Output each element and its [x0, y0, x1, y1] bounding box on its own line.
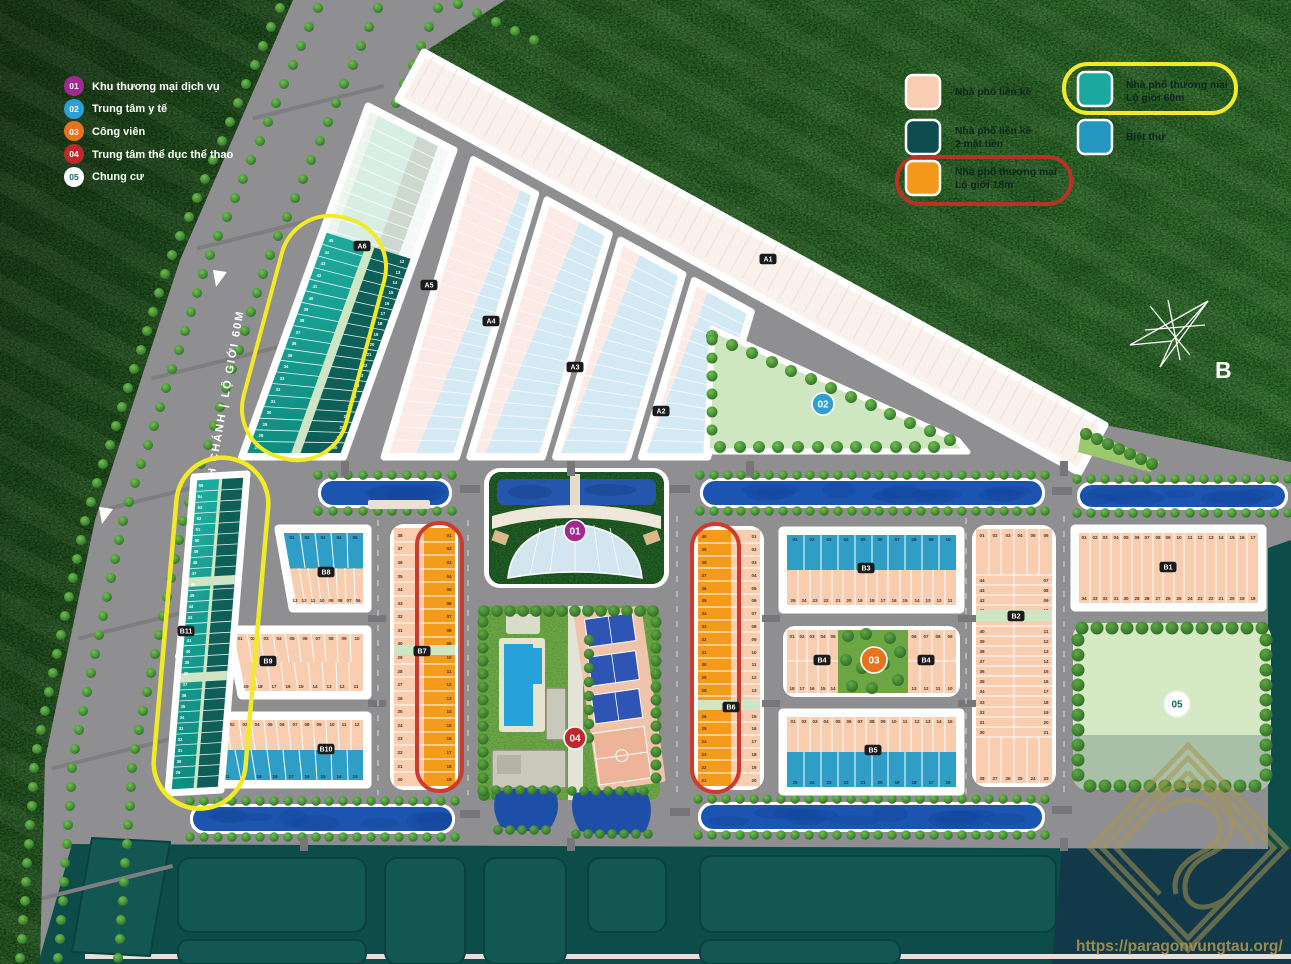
svg-text:34: 34 [284, 364, 289, 369]
svg-text:23: 23 [812, 598, 818, 603]
svg-text:16: 16 [304, 774, 310, 779]
svg-text:22: 22 [701, 765, 707, 770]
svg-text:Biệt thự: Biệt thự [1126, 132, 1166, 143]
svg-text:06: 06 [877, 537, 883, 542]
svg-text:07: 07 [292, 722, 298, 727]
svg-text:10: 10 [446, 655, 452, 660]
svg-text:05: 05 [835, 719, 841, 724]
svg-text:12: 12 [1197, 535, 1203, 540]
svg-text:30: 30 [177, 759, 182, 764]
svg-text:33: 33 [1092, 596, 1098, 601]
svg-text:31: 31 [397, 628, 403, 633]
svg-text:35: 35 [701, 598, 707, 603]
svg-text:11: 11 [752, 662, 757, 667]
svg-text:22: 22 [823, 598, 829, 603]
svg-text:18: 18 [257, 684, 263, 689]
svg-text:14: 14 [312, 684, 318, 689]
svg-text:09: 09 [928, 537, 934, 542]
svg-text:Chung cư: Chung cư [92, 171, 144, 183]
svg-text:18: 18 [446, 764, 452, 769]
svg-text:18: 18 [378, 321, 383, 326]
svg-text:40: 40 [186, 649, 191, 654]
svg-text:37: 37 [397, 546, 403, 551]
svg-text:16: 16 [1043, 679, 1049, 684]
svg-text:11: 11 [311, 598, 316, 603]
svg-text:16: 16 [809, 686, 815, 691]
svg-text:33: 33 [280, 376, 285, 381]
svg-text:09: 09 [1043, 598, 1049, 603]
svg-text:31: 31 [178, 748, 183, 753]
svg-text:05: 05 [1171, 700, 1183, 711]
svg-text:25: 25 [792, 780, 798, 785]
svg-text:08: 08 [911, 537, 917, 542]
svg-text:12: 12 [400, 259, 405, 264]
svg-text:08: 08 [935, 634, 941, 639]
svg-text:20: 20 [370, 342, 375, 347]
svg-text:08: 08 [304, 722, 310, 727]
svg-text:31: 31 [701, 650, 707, 655]
svg-text:20: 20 [1229, 596, 1235, 601]
svg-text:01: 01 [446, 533, 452, 538]
svg-text:24: 24 [397, 723, 403, 728]
svg-text:23: 23 [397, 736, 403, 741]
svg-text:08: 08 [1155, 535, 1161, 540]
svg-text:21: 21 [397, 764, 403, 769]
svg-text:26: 26 [397, 696, 403, 701]
svg-text:37: 37 [296, 330, 301, 335]
svg-text:12: 12 [446, 682, 452, 687]
svg-text:02: 02 [992, 533, 998, 538]
svg-text:18: 18 [911, 780, 917, 785]
svg-text:03: 03 [263, 636, 269, 641]
svg-text:28: 28 [979, 776, 985, 781]
svg-text:14: 14 [830, 686, 836, 691]
svg-text:33: 33 [979, 700, 985, 705]
svg-text:15: 15 [446, 723, 452, 728]
svg-text:25: 25 [1017, 776, 1023, 781]
svg-text:19: 19 [1043, 710, 1049, 715]
svg-text:24: 24 [809, 780, 815, 785]
svg-text:25: 25 [790, 598, 796, 603]
svg-text:16: 16 [945, 780, 951, 785]
svg-text:43: 43 [188, 615, 193, 620]
svg-text:10: 10 [354, 636, 360, 641]
svg-text:B4: B4 [818, 658, 827, 665]
svg-text:Nhà phố liền kề: Nhà phố liền kề [955, 86, 1031, 98]
svg-text:A4: A4 [487, 319, 496, 326]
svg-text:46: 46 [191, 582, 196, 587]
svg-text:52: 52 [197, 516, 202, 521]
svg-text:12: 12 [354, 722, 360, 727]
svg-text:02: 02 [801, 719, 807, 724]
svg-text:13: 13 [751, 688, 757, 693]
svg-text:40: 40 [701, 534, 707, 539]
svg-text:06: 06 [302, 636, 308, 641]
svg-text:09: 09 [316, 722, 322, 727]
svg-text:07: 07 [346, 598, 352, 603]
svg-text:45: 45 [190, 593, 195, 598]
svg-text:12: 12 [923, 686, 929, 691]
svg-text:19: 19 [894, 780, 900, 785]
svg-text:05: 05 [352, 535, 358, 540]
svg-text:32: 32 [1102, 596, 1108, 601]
svg-text:03: 03 [812, 719, 818, 724]
svg-text:14: 14 [1043, 659, 1049, 664]
svg-text:11: 11 [903, 719, 908, 724]
svg-text:02: 02 [751, 547, 757, 552]
svg-text:Lộ giới 18m: Lộ giới 18m [955, 180, 1013, 191]
svg-text:17: 17 [1043, 689, 1049, 694]
svg-text:21: 21 [701, 778, 707, 783]
svg-text:05: 05 [751, 586, 757, 591]
svg-text:44: 44 [979, 578, 985, 583]
svg-text:13: 13 [352, 774, 358, 779]
svg-text:26: 26 [1005, 776, 1011, 781]
svg-text:21: 21 [367, 352, 372, 357]
svg-text:15: 15 [820, 686, 826, 691]
svg-text:21: 21 [835, 598, 841, 603]
svg-text:33: 33 [397, 601, 403, 606]
svg-text:17: 17 [288, 774, 294, 779]
svg-text:B10: B10 [320, 747, 333, 754]
svg-text:10: 10 [751, 650, 757, 655]
svg-text:04: 04 [823, 719, 829, 724]
svg-text:07: 07 [857, 719, 863, 724]
svg-text:29: 29 [397, 655, 403, 660]
svg-text:18: 18 [789, 686, 795, 691]
svg-text:03: 03 [751, 560, 757, 565]
svg-text:B7: B7 [418, 649, 427, 656]
svg-text:38: 38 [979, 649, 985, 654]
svg-text:06: 06 [355, 598, 361, 603]
svg-text:37: 37 [979, 659, 985, 664]
svg-text:45: 45 [329, 238, 334, 243]
svg-text:37: 37 [701, 573, 707, 578]
svg-text:35: 35 [979, 679, 985, 684]
svg-text:32: 32 [397, 614, 403, 619]
svg-text:32: 32 [701, 637, 707, 642]
svg-text:27: 27 [992, 776, 998, 781]
svg-text:B4: B4 [922, 658, 931, 665]
svg-text:02: 02 [817, 400, 829, 411]
svg-text:50: 50 [195, 538, 200, 543]
svg-text:30: 30 [1123, 596, 1129, 601]
svg-text:02: 02 [69, 104, 79, 114]
svg-text:15: 15 [389, 290, 394, 295]
svg-text:14: 14 [336, 774, 342, 779]
svg-text:33: 33 [701, 624, 707, 629]
svg-text:11: 11 [948, 598, 953, 603]
svg-text:Nhà phố thương mại: Nhà phố thương mại [1126, 79, 1228, 91]
svg-text:07: 07 [315, 636, 321, 641]
svg-text:41: 41 [313, 284, 318, 289]
svg-text:34: 34 [180, 715, 185, 720]
svg-text:05: 05 [69, 172, 79, 182]
svg-text:35: 35 [181, 704, 186, 709]
svg-text:15: 15 [1229, 535, 1235, 540]
svg-text:19: 19 [1239, 596, 1245, 601]
svg-text:13: 13 [446, 696, 452, 701]
svg-text:02: 02 [446, 546, 452, 551]
svg-text:B: B [1215, 357, 1232, 383]
svg-text:40: 40 [309, 296, 314, 301]
svg-text:19: 19 [256, 774, 262, 779]
svg-text:13: 13 [292, 598, 298, 603]
svg-text:05: 05 [1123, 535, 1129, 540]
svg-text:32: 32 [178, 737, 183, 742]
svg-text:25: 25 [701, 726, 707, 731]
svg-text:24: 24 [801, 598, 807, 603]
svg-text:14: 14 [936, 719, 942, 724]
svg-text:A6: A6 [358, 244, 367, 251]
svg-text:10: 10 [329, 722, 335, 727]
svg-text:13: 13 [326, 684, 332, 689]
svg-text:08: 08 [1043, 588, 1049, 593]
svg-text:B8: B8 [322, 570, 331, 577]
svg-text:03: 03 [320, 535, 326, 540]
svg-text:16: 16 [446, 736, 452, 741]
svg-text:17: 17 [1250, 535, 1256, 540]
svg-text:30: 30 [701, 662, 707, 667]
svg-text:19: 19 [751, 765, 757, 770]
svg-text:36: 36 [292, 341, 297, 346]
svg-text:12: 12 [1043, 639, 1049, 644]
svg-text:13: 13 [396, 270, 401, 275]
svg-text:37: 37 [183, 682, 188, 687]
svg-text:29: 29 [176, 770, 181, 775]
svg-text:04: 04 [569, 734, 581, 745]
svg-text:07: 07 [446, 614, 452, 619]
svg-text:38: 38 [397, 533, 403, 538]
svg-text:Khu thương mại dịch vụ: Khu thương mại dịch vụ [92, 81, 220, 93]
svg-text:01: 01 [1081, 535, 1087, 540]
svg-text:44: 44 [189, 604, 194, 609]
svg-text:26: 26 [1165, 596, 1171, 601]
svg-text:09: 09 [328, 598, 334, 603]
svg-text:https://paragonvungtau.org/: https://paragonvungtau.org/ [1076, 938, 1283, 955]
svg-text:38: 38 [300, 318, 305, 323]
svg-text:01: 01 [69, 81, 79, 91]
svg-text:B3: B3 [862, 566, 871, 573]
svg-text:13: 13 [1043, 649, 1049, 654]
svg-text:10: 10 [945, 537, 951, 542]
svg-text:05: 05 [860, 537, 866, 542]
svg-text:B11: B11 [180, 629, 193, 636]
svg-text:12: 12 [914, 719, 920, 724]
svg-text:05: 05 [446, 587, 452, 592]
svg-text:11: 11 [354, 684, 359, 689]
svg-text:01: 01 [979, 533, 985, 538]
svg-text:41: 41 [187, 638, 192, 643]
svg-text:Nhà phố liền kề: Nhà phố liền kề [955, 125, 1031, 137]
svg-text:17: 17 [381, 311, 386, 316]
svg-text:04: 04 [69, 149, 79, 159]
svg-text:01: 01 [289, 535, 295, 540]
svg-text:04: 04 [446, 574, 452, 579]
svg-text:09: 09 [880, 719, 886, 724]
svg-text:20: 20 [1043, 720, 1049, 725]
svg-text:09: 09 [947, 634, 953, 639]
svg-text:Nhà phố thương mại: Nhà phố thương mại [955, 166, 1057, 178]
svg-text:19: 19 [374, 332, 379, 337]
svg-text:36: 36 [701, 586, 707, 591]
svg-text:B9: B9 [264, 659, 273, 666]
svg-text:47: 47 [192, 571, 197, 576]
svg-text:39: 39 [304, 307, 309, 312]
svg-text:55: 55 [199, 483, 204, 488]
svg-text:Lộ giới 60m: Lộ giới 60m [1126, 93, 1184, 104]
svg-text:B6: B6 [727, 705, 736, 712]
svg-text:27: 27 [397, 682, 403, 687]
svg-text:32: 32 [276, 387, 281, 392]
svg-text:27: 27 [1155, 596, 1161, 601]
svg-text:24: 24 [701, 739, 707, 744]
svg-text:14: 14 [1218, 535, 1224, 540]
svg-text:54: 54 [198, 494, 203, 499]
svg-text:12: 12 [301, 598, 307, 603]
svg-text:03: 03 [1005, 533, 1011, 538]
svg-text:51: 51 [196, 527, 201, 532]
svg-text:31: 31 [271, 399, 276, 404]
svg-text:16: 16 [385, 301, 390, 306]
svg-text:22: 22 [397, 750, 403, 755]
svg-text:02: 02 [304, 535, 310, 540]
svg-text:35: 35 [397, 574, 403, 579]
svg-text:09: 09 [1165, 535, 1171, 540]
svg-text:30: 30 [979, 730, 985, 735]
svg-text:08: 08 [446, 628, 452, 633]
svg-text:03: 03 [809, 634, 815, 639]
svg-text:38: 38 [701, 560, 707, 565]
svg-text:Trung tâm y tế: Trung tâm y tế [92, 103, 168, 115]
svg-text:04: 04 [820, 634, 826, 639]
svg-text:16: 16 [751, 726, 757, 731]
svg-text:33: 33 [179, 726, 184, 731]
svg-text:20: 20 [751, 778, 757, 783]
svg-text:21: 21 [1218, 596, 1224, 601]
svg-text:38: 38 [184, 671, 189, 676]
svg-text:01: 01 [792, 537, 798, 542]
svg-text:25: 25 [397, 709, 403, 714]
svg-text:19: 19 [857, 598, 863, 603]
svg-text:17: 17 [799, 686, 805, 691]
svg-text:15: 15 [751, 714, 757, 719]
svg-text:43: 43 [321, 261, 326, 266]
svg-text:18: 18 [1043, 700, 1049, 705]
svg-text:12: 12 [751, 675, 757, 680]
svg-text:A3: A3 [571, 365, 580, 372]
svg-text:04: 04 [276, 636, 282, 641]
svg-text:02: 02 [229, 722, 235, 727]
svg-text:29: 29 [1134, 596, 1140, 601]
svg-text:16: 16 [1239, 535, 1245, 540]
svg-text:02: 02 [799, 634, 805, 639]
svg-text:08: 08 [328, 636, 334, 641]
svg-text:29: 29 [701, 675, 707, 680]
svg-text:19: 19 [446, 777, 452, 782]
svg-text:B2: B2 [1012, 614, 1021, 621]
svg-text:01: 01 [790, 719, 796, 724]
svg-text:06: 06 [846, 719, 852, 724]
svg-text:05: 05 [1030, 533, 1036, 538]
svg-text:18: 18 [1250, 596, 1256, 601]
svg-text:10: 10 [319, 598, 325, 603]
svg-text:32: 32 [979, 710, 985, 715]
svg-text:03: 03 [446, 560, 452, 565]
svg-text:16: 16 [285, 684, 291, 689]
svg-text:20: 20 [397, 777, 403, 782]
svg-text:28: 28 [259, 433, 264, 438]
svg-text:04: 04 [1017, 533, 1023, 538]
svg-text:42: 42 [979, 598, 985, 603]
svg-text:Trung tâm thể dục thể thao: Trung tâm thể dục thể thao [92, 149, 233, 161]
svg-text:04: 04 [336, 535, 342, 540]
svg-text:04: 04 [751, 573, 757, 578]
svg-text:34: 34 [1081, 596, 1087, 601]
svg-text:01: 01 [569, 527, 581, 538]
svg-text:20: 20 [846, 598, 852, 603]
svg-text:13: 13 [925, 598, 931, 603]
svg-text:17: 17 [928, 780, 934, 785]
svg-text:07: 07 [751, 611, 757, 616]
svg-text:39: 39 [185, 660, 190, 665]
svg-text:24: 24 [1030, 776, 1036, 781]
svg-text:22: 22 [1208, 596, 1214, 601]
svg-text:14: 14 [393, 280, 398, 285]
svg-text:48: 48 [193, 560, 198, 565]
svg-text:29: 29 [263, 422, 268, 427]
svg-text:06: 06 [751, 598, 757, 603]
svg-text:13: 13 [1208, 535, 1214, 540]
svg-text:Công viên: Công viên [92, 126, 145, 138]
svg-text:28: 28 [701, 688, 707, 693]
svg-text:01: 01 [237, 636, 243, 641]
svg-text:11: 11 [1044, 629, 1049, 634]
svg-text:12: 12 [339, 684, 345, 689]
svg-text:17: 17 [751, 739, 757, 744]
svg-text:09: 09 [341, 636, 347, 641]
svg-text:40: 40 [979, 629, 985, 634]
svg-text:18: 18 [869, 598, 875, 603]
svg-text:06: 06 [1043, 533, 1049, 538]
svg-text:13: 13 [911, 686, 917, 691]
svg-text:49: 49 [194, 549, 199, 554]
svg-text:15: 15 [298, 684, 304, 689]
svg-text:21: 21 [860, 780, 866, 785]
svg-text:15: 15 [902, 598, 908, 603]
svg-text:30: 30 [267, 410, 272, 415]
svg-text:10: 10 [1176, 535, 1182, 540]
svg-text:07: 07 [923, 634, 929, 639]
svg-text:23: 23 [1043, 776, 1049, 781]
svg-text:05: 05 [830, 634, 836, 639]
svg-text:17: 17 [880, 598, 886, 603]
svg-text:16: 16 [891, 598, 897, 603]
svg-text:04: 04 [843, 537, 849, 542]
svg-text:31: 31 [979, 720, 985, 725]
svg-text:01: 01 [751, 534, 757, 539]
svg-text:05: 05 [267, 722, 273, 727]
svg-text:53: 53 [198, 505, 203, 510]
svg-text:36: 36 [979, 669, 985, 674]
svg-text:39: 39 [701, 547, 707, 552]
svg-text:01: 01 [789, 634, 795, 639]
svg-text:11: 11 [1188, 535, 1193, 540]
svg-text:14: 14 [446, 709, 452, 714]
svg-text:34: 34 [979, 689, 985, 694]
svg-text:11: 11 [447, 669, 452, 674]
svg-text:31: 31 [1113, 596, 1119, 601]
